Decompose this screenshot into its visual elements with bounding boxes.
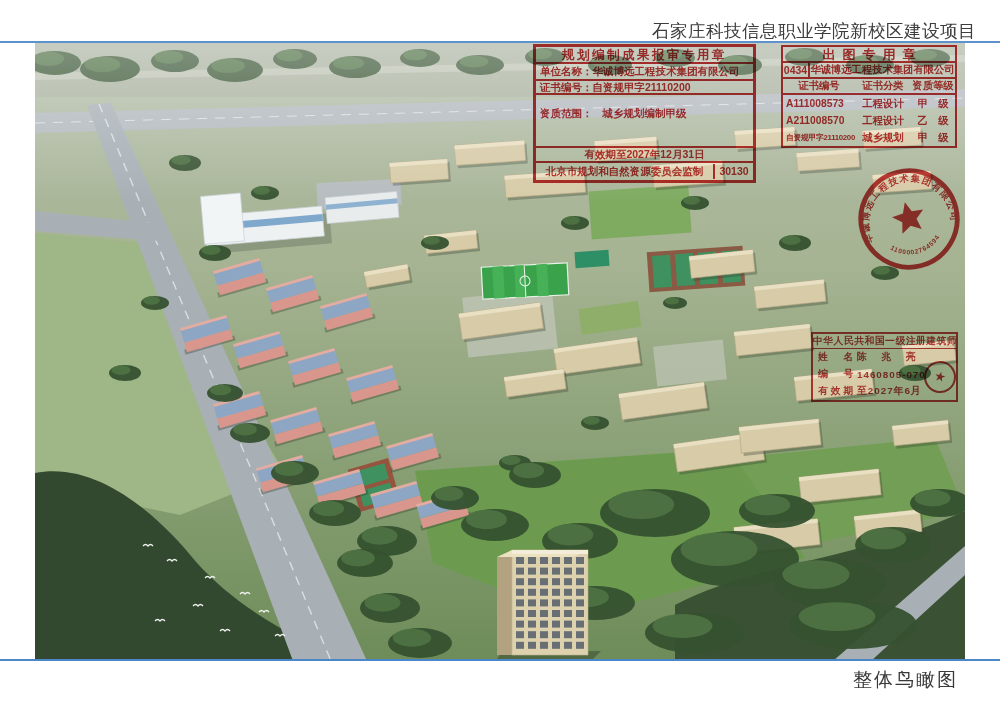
cert-no-row: 证书编号：自资规甲字21110200 [536, 81, 753, 95]
name-label: 姓 名 [813, 351, 857, 364]
table-row: A111008573 工程设计 甲 级 [783, 95, 955, 112]
col-cert-no: 证书编号 [783, 79, 855, 93]
no-value: 1460805-070 [857, 369, 926, 380]
grade: 甲 级 [911, 131, 955, 145]
unit-value: 华诚博远工程技术集团有限公司 [593, 65, 740, 77]
col-grade: 资质等级 [911, 79, 955, 93]
category: 工程设计 [855, 97, 911, 111]
validity-row: 有效期至2027年12月31日 [536, 148, 753, 163]
seal-number: 1100002764594 [888, 232, 943, 261]
table-row: 自资规甲字21110200 城乡规划 甲 级 [783, 129, 955, 146]
stamp-title: 规划编制成果报审专用章 [536, 47, 753, 64]
soccer-field [481, 263, 569, 299]
scope-label: 资质范围： [540, 107, 593, 119]
seal-company-name: 华诚博远工程技术集团有限公司 [856, 166, 961, 246]
cert-label: 证书编号： [540, 81, 593, 93]
table-header: 证书编号 证书分类 资质等级 [783, 79, 955, 95]
cert-value: 自资规甲字21110200 [593, 81, 691, 93]
cert-no: A111008573 [783, 98, 855, 109]
svg-text:1100002764594: 1100002764594 [888, 232, 943, 261]
company-row: 0434 华诚博远工程技术集团有限公司 [783, 63, 955, 79]
cert-no: 自资规甲字21110200 [783, 132, 855, 143]
unit-label: 单位名称： [540, 65, 593, 77]
scope-row: 资质范围：城乡规划编制甲级 [536, 95, 753, 148]
name-value: 陈 兆 亮 [857, 351, 922, 364]
drawing-sheet: 石家庄科技信息职业学院新校区建设项目 [0, 0, 1000, 707]
office-tower [497, 550, 601, 659]
architect-stamp: 中华人民共和国一级注册建筑师 姓 名 陈 兆 亮 编 号 1460805-070… [811, 332, 958, 402]
unit-name-row: 单位名称：华诚博远工程技术集团有限公司 [536, 64, 753, 81]
cert-no: A211008570 [783, 115, 855, 126]
stamp-title: 中华人民共和国一级注册建筑师 [813, 334, 956, 349]
grade: 甲 级 [911, 97, 955, 111]
project-title: 石家庄科技信息职业学院新校区建设项目 [652, 19, 976, 43]
grade: 乙 级 [911, 114, 955, 128]
company-name: 华诚博远工程技术集团有限公司 [810, 63, 955, 77]
plaza-2 [653, 339, 727, 386]
serial-number: 30130 [713, 164, 753, 179]
stamp-title: 出图专用章 [783, 47, 955, 63]
company-seal: 华诚博远工程技术集团有限公司 1100002764594 [856, 166, 962, 272]
planning-approval-stamp: 规划编制成果报审专用章 单位名称：华诚博远工程技术集团有限公司 证书编号：自资规… [533, 44, 756, 183]
table-row: A211008570 工程设计 乙 级 [783, 112, 955, 129]
svg-text:华诚博远工程技术集团有限公司: 华诚博远工程技术集团有限公司 [856, 166, 961, 246]
valid-value: 至2027年6月 [857, 385, 922, 398]
issuer-row: 北京市规划和自然资源委员会监制 30130 [536, 163, 753, 180]
valid-label: 有效期 [813, 385, 857, 398]
category: 城乡规划 [855, 131, 911, 145]
star-icon [889, 198, 927, 235]
bottom-rule [0, 659, 1000, 661]
scope-value: 城乡规划编制甲级 [603, 107, 687, 119]
view-caption: 整体鸟瞰图 [853, 667, 958, 693]
category: 工程设计 [855, 114, 911, 128]
company-code: 0434 [783, 63, 810, 77]
small-court [574, 250, 609, 268]
col-category: 证书分类 [855, 79, 911, 93]
no-label: 编 号 [813, 368, 857, 381]
plot-release-stamp: 出图专用章 0434 华诚博远工程技术集团有限公司 证书编号 证书分类 资质等级… [781, 45, 957, 148]
issuer-text: 北京市规划和自然资源委员会监制 [536, 165, 713, 179]
